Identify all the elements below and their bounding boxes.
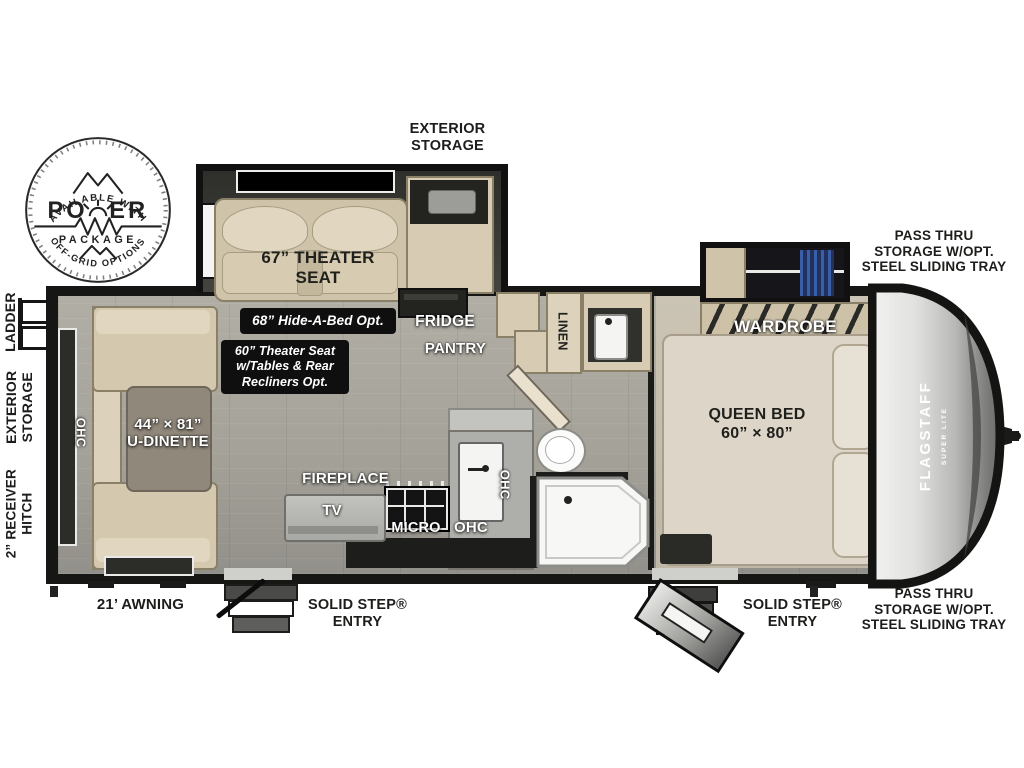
fridge-door-line: [404, 294, 458, 300]
front-cap: FLAGSTAFF SUPER LITE: [868, 276, 1024, 596]
awning-end-right: [810, 586, 818, 597]
exterior-storage-top-label: EXTERIOR STORAGE: [385, 121, 510, 155]
slideout-window: [238, 172, 393, 191]
bed-bench: [660, 534, 712, 564]
dinette-bench-top-backrest: [96, 310, 210, 334]
jack-pad-2: [160, 581, 186, 588]
queen-bed-label: QUEEN BED 60” × 80”: [678, 406, 836, 443]
theater-seat-label: 67” THEATER SEAT: [232, 248, 404, 287]
solid-step-right-label: SOLID STEP® ENTRY: [730, 597, 855, 631]
fireplace-label: FIREPLACE: [288, 470, 403, 487]
dinette-ohc-label: OHC: [73, 410, 88, 456]
fridge-label: FRIDGE: [400, 313, 490, 331]
kitchen-lower-counter: [346, 538, 530, 568]
mountains-icon: [73, 173, 122, 194]
jack-pad-1: [88, 581, 114, 588]
hanging-clothes: [800, 250, 834, 296]
shower: [530, 470, 654, 572]
hide-a-bed-option-badge: 68” Hide-A-Bed Opt.: [240, 308, 396, 334]
theater-seat-back-left: [222, 206, 308, 252]
kitchen-ohc-label: OHC: [448, 519, 494, 536]
hitch-ball-icon: [1013, 432, 1021, 440]
step-3: [232, 616, 290, 633]
theater-seat-option-badge: 60” Theater Seat w/Tables & Rear Recline…: [221, 340, 349, 394]
entry-threshold-left: [224, 568, 292, 580]
awning-end-left: [50, 586, 58, 597]
awning-label: 21’ AWNING: [88, 596, 193, 613]
badge-power-right: ER: [109, 198, 148, 224]
toilet-seat: [545, 436, 575, 464]
dinette-bottom-window: [104, 556, 194, 576]
entry-steps-left: [222, 582, 302, 636]
brand-name: FLAGSTAFF: [917, 381, 934, 492]
solid-step-left-label: SOLID STEP® ENTRY: [295, 597, 420, 631]
pantry-label: PANTRY: [413, 340, 498, 357]
linen-label: LINEN: [555, 303, 570, 359]
pass-thru-top-label: PASS THRU STORAGE W/OPT. STEEL SLIDING T…: [845, 228, 1023, 275]
shower-drain-icon: [564, 496, 572, 504]
faucet-handle-icon: [482, 465, 489, 472]
tv-credenza-shelf: [288, 526, 378, 534]
tv-label: TV: [300, 502, 364, 519]
door-window-icon: [661, 602, 713, 644]
theater-seat-back-right: [312, 206, 398, 252]
dinette-label: 44” × 81” U-DINETTE: [98, 416, 238, 451]
receiver-hitch-label: 2” RECEIVER HITCH: [3, 449, 34, 579]
rv-floorplan: AVAILABLE WITH PO ER PACKAGE OFF-GRID OP…: [0, 0, 1024, 768]
bath-faucet-icon: [605, 318, 612, 325]
kitchen-ohc-sink-label: OHC: [497, 463, 512, 507]
power-package-badge: AVAILABLE WITH PO ER PACKAGE OFF-GRID OP…: [20, 132, 176, 288]
brand-sub: SUPER LITE: [941, 407, 948, 465]
wardrobe-shelf-panel: [706, 248, 746, 298]
entry-threshold-right: [652, 568, 738, 580]
stove-grate-h: [386, 505, 444, 507]
exterior-storage-side-label: EXTERIOR STORAGE: [3, 352, 35, 462]
slideout-cabinet-item: [428, 190, 476, 214]
micro-label: MICRO: [384, 520, 448, 537]
badge-package: PACKAGE: [59, 234, 137, 246]
